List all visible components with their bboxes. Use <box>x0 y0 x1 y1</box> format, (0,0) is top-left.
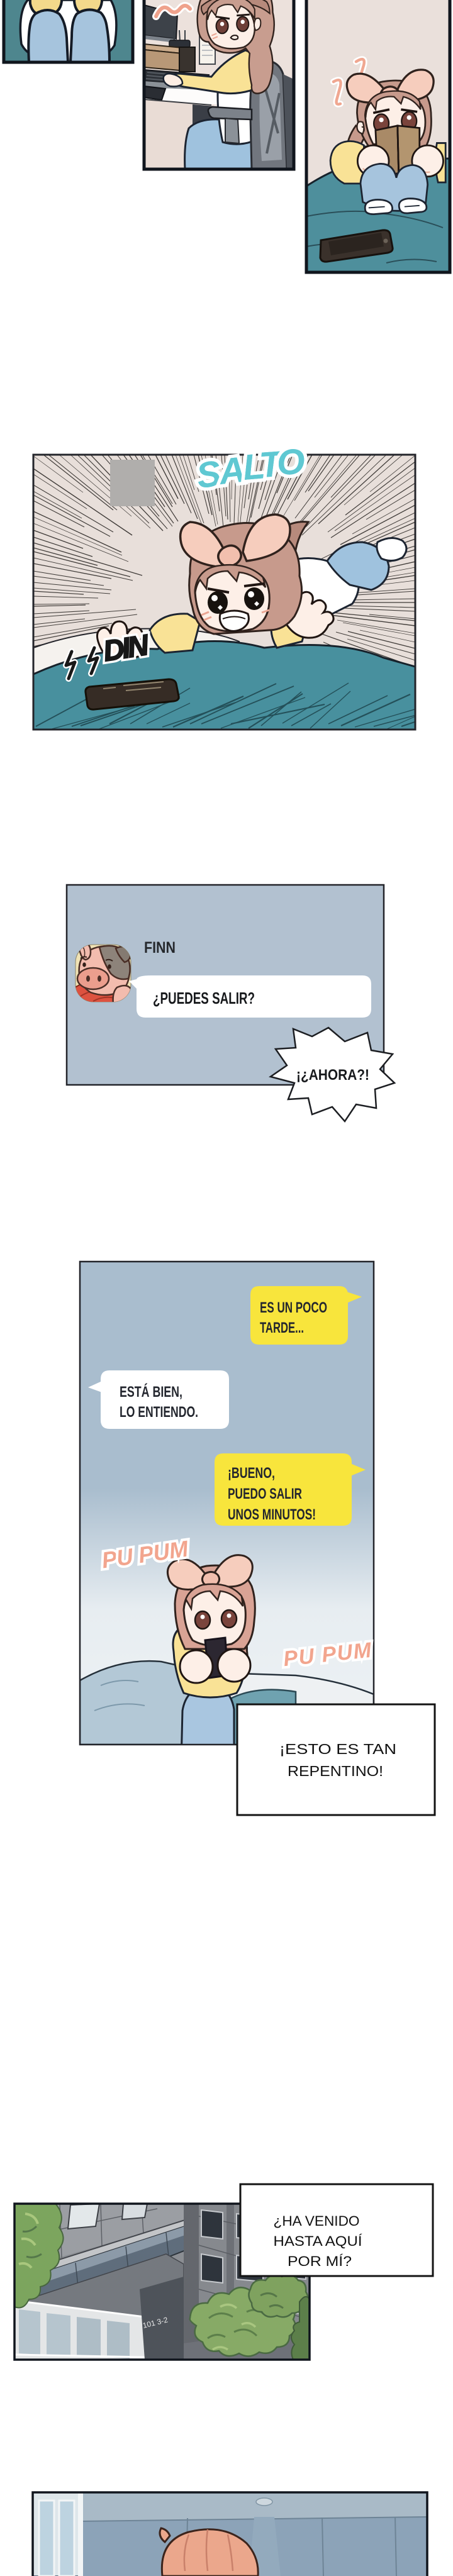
svg-text:REPENTINO!: REPENTINO! <box>288 1763 383 1779</box>
svg-text:TARDE...: TARDE... <box>260 1319 304 1336</box>
svg-text:PUEDO SALIR: PUEDO SALIR <box>228 1485 302 1502</box>
svg-text:¡BUENO,: ¡BUENO, <box>228 1465 275 1482</box>
svg-text:FINN: FINN <box>144 939 176 957</box>
svg-text:¿PUEDES SALIR?: ¿PUEDES SALIR? <box>153 989 255 1008</box>
svg-text:¿HA VENIDO: ¿HA VENIDO <box>274 2213 360 2229</box>
svg-text:¡¿AHORA?!: ¡¿AHORA?! <box>296 1067 369 1084</box>
svg-text:ESTÁ BIEN,: ESTÁ BIEN, <box>120 1383 182 1401</box>
svg-text:ES UN POCO: ES UN POCO <box>260 1299 327 1316</box>
svg-text:¡ESTO ES TAN: ¡ESTO ES TAN <box>279 1741 396 1757</box>
svg-text:UNOS MINUTOS!: UNOS MINUTOS! <box>228 1506 316 1523</box>
svg-text:LO ENTIENDO.: LO ENTIENDO. <box>120 1404 198 1421</box>
svg-text:POR MÍ?: POR MÍ? <box>288 2253 352 2269</box>
svg-text:O: O <box>276 441 306 483</box>
svg-text:HASTA AQUÍ: HASTA AQUÍ <box>274 2233 363 2249</box>
